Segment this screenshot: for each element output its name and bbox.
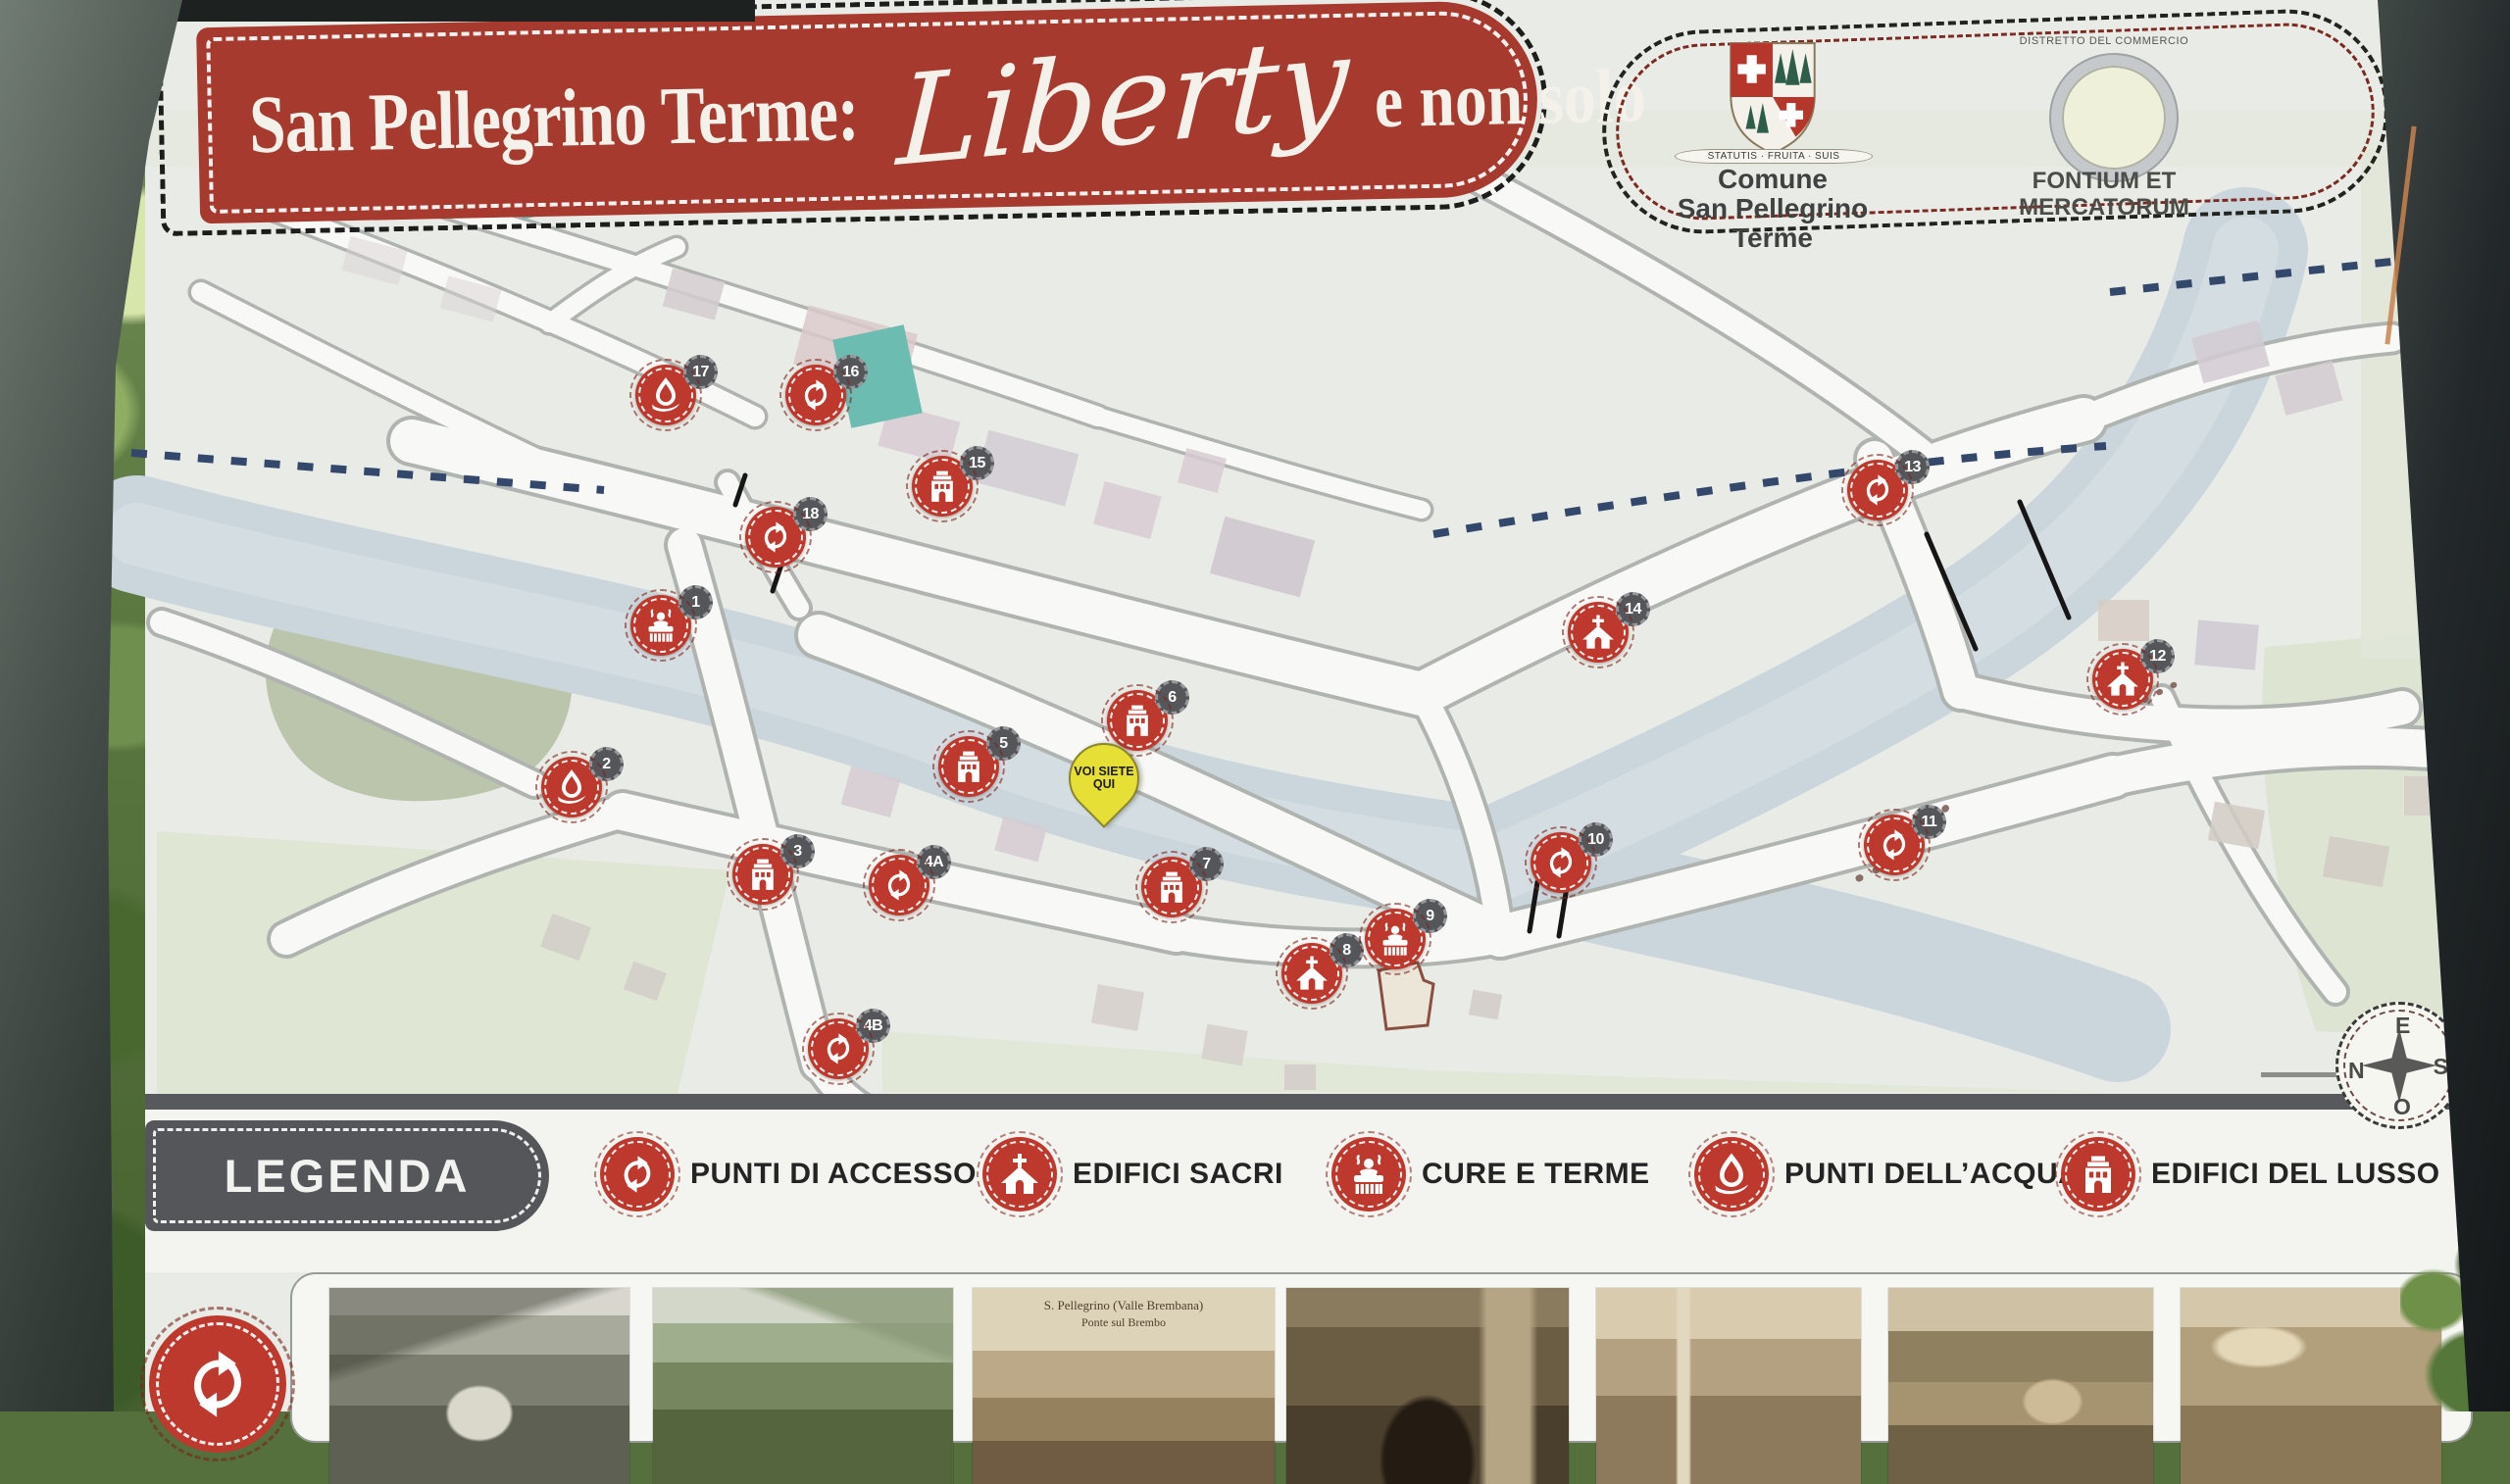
poi-marker-number: 4A — [917, 845, 951, 879]
legend-item: EDIFICI DEL LUSSO — [2061, 1137, 2440, 1212]
compass-star-icon — [2338, 1005, 2460, 1126]
photo-caption: S. Pellegrino (Valle Brembana) — [973, 1298, 1275, 1313]
poi-marker-number: 13 — [1895, 450, 1930, 484]
poi-marker-number: 16 — [833, 355, 868, 389]
poi-marker-number: 3 — [780, 834, 815, 868]
poi-marker: 10 — [1531, 832, 1591, 893]
legend-divider-bar — [145, 1094, 2510, 1110]
poi-marker-number: 5 — [986, 726, 1021, 761]
legend-item: PUNTI DELL’ACQUA — [1694, 1137, 2080, 1212]
poi-marker: 4B — [808, 1018, 869, 1079]
fontium-label: FONTIUM ET MERCATORUM — [2002, 169, 2206, 222]
legend-item: EDIFICI SACRI — [982, 1137, 1283, 1212]
poi-marker: 15 — [912, 456, 973, 517]
sign-title: San Pellegrino Terme: — [248, 65, 859, 173]
legend-title-capsule: LEGENDA — [145, 1120, 549, 1231]
you-are-here-label: VOI SIETE QUI — [1071, 745, 1137, 812]
poi-marker: 2 — [541, 757, 602, 817]
compass-west: O — [2393, 1094, 2411, 1120]
poi-marker-icon — [796, 375, 835, 415]
poi-marker-number: 9 — [1413, 899, 1447, 933]
poi-marker: 14 — [1568, 602, 1629, 663]
poi-marker-icon — [923, 467, 962, 506]
poi-marker-number: 18 — [793, 497, 828, 531]
poi-marker: 1 — [630, 595, 691, 656]
compass-east: E — [2395, 1013, 2410, 1039]
poi-marker-number: 4B — [856, 1009, 890, 1043]
poi-marker: 3 — [732, 844, 793, 905]
historic-photo — [329, 1288, 629, 1484]
historic-photo — [1286, 1288, 1569, 1484]
poi-marker-icon — [646, 375, 685, 415]
comune-motto: STATUTIS · FRUITA · SUIS — [1675, 149, 1873, 164]
legend-icon — [1331, 1137, 1406, 1212]
poi-marker: 17 — [635, 365, 696, 425]
sign-title-script: Liberty — [894, 8, 1352, 194]
access-point-icon — [149, 1315, 286, 1453]
compass-leader-line — [2261, 1072, 2345, 1077]
historic-photo — [653, 1288, 953, 1484]
poi-marker-number: 12 — [2140, 639, 2175, 673]
poi-marker-number: 1 — [678, 585, 713, 619]
poi-marker: 18 — [745, 507, 806, 568]
poi-marker-icon — [1875, 825, 1914, 865]
poi-marker: 7 — [1141, 857, 1202, 917]
comune-coat-of-arms — [1722, 39, 1824, 157]
poi-marker-number: 17 — [683, 355, 718, 389]
poi-marker-icon — [1858, 470, 1897, 510]
historic-photo — [1888, 1288, 2153, 1484]
poi-marker: 13 — [1847, 460, 1908, 520]
poi-marker-icon — [743, 855, 782, 894]
poi-marker-icon — [949, 747, 988, 786]
fontium-coin-logo — [2051, 55, 2177, 180]
poi-marker-number: 10 — [1579, 822, 1613, 857]
legend-item-label: PUNTI DELL’ACQUA — [1784, 1158, 2080, 1191]
poi-marker-number: 2 — [589, 747, 624, 781]
poi-marker: 4A — [869, 855, 929, 915]
poi-marker-number: 7 — [1189, 847, 1224, 881]
poi-marker-icon — [1376, 919, 1415, 959]
poi-marker-icon — [879, 866, 919, 905]
legend-item-label: PUNTI DI ACCESSO — [690, 1158, 977, 1191]
legend-item: CURE E TERME — [1331, 1137, 1650, 1212]
poi-marker: 9 — [1365, 909, 1426, 969]
legend-icon — [600, 1137, 675, 1212]
poi-marker: 16 — [785, 365, 846, 425]
legend-title: LEGENDA — [225, 1149, 471, 1203]
poi-marker-number: 11 — [1912, 805, 1946, 839]
poi-marker-icon — [1118, 701, 1157, 740]
legend-icon — [982, 1137, 1057, 1212]
compass-north: N — [2348, 1058, 2365, 1084]
poi-marker-icon — [756, 518, 795, 557]
poi-marker-icon — [1152, 867, 1191, 907]
legend-item-label: CURE E TERME — [1422, 1158, 1650, 1191]
poi-marker-icon — [641, 606, 680, 645]
poi-marker-icon — [1292, 954, 1331, 993]
poi-marker: 8 — [1281, 943, 1342, 1004]
legend-icon — [2061, 1137, 2135, 1212]
poi-marker-icon — [1541, 843, 1581, 882]
distretto-label: DISTRETTO DEL COMMERCIO — [2000, 35, 2208, 47]
poi-marker-icon — [819, 1029, 858, 1068]
title-banner: San Pellegrino Terme: Liberty e non solo — [196, 0, 1539, 223]
poi-marker: 5 — [938, 736, 999, 797]
poi-marker: 6 — [1107, 690, 1168, 751]
legend-icon — [1694, 1137, 1769, 1212]
poi-marker-number: 14 — [1616, 592, 1650, 626]
poi-marker-number: 15 — [960, 446, 994, 480]
photo-caption-line2: Ponte sul Brembo — [973, 1315, 1275, 1330]
historic-photo — [1596, 1288, 1861, 1484]
poi-marker-icon — [552, 767, 591, 807]
legend-item: PUNTI DI ACCESSO — [600, 1137, 977, 1212]
poi-marker-number: 6 — [1155, 680, 1189, 715]
legend-item-label: EDIFICI DEL LUSSO — [2151, 1158, 2440, 1191]
historic-photo: S. Pellegrino (Valle Brembana) Ponte sul… — [973, 1288, 1275, 1484]
poi-marker-icon — [2103, 660, 2142, 699]
legend-item-label: EDIFICI SACRI — [1073, 1158, 1283, 1191]
poi-marker: 12 — [2092, 649, 2153, 710]
poi-marker-icon — [1579, 613, 1618, 652]
poi-marker: 11 — [1864, 815, 1925, 875]
comune-label: Comune San Pellegrino Terme — [1639, 165, 1906, 254]
